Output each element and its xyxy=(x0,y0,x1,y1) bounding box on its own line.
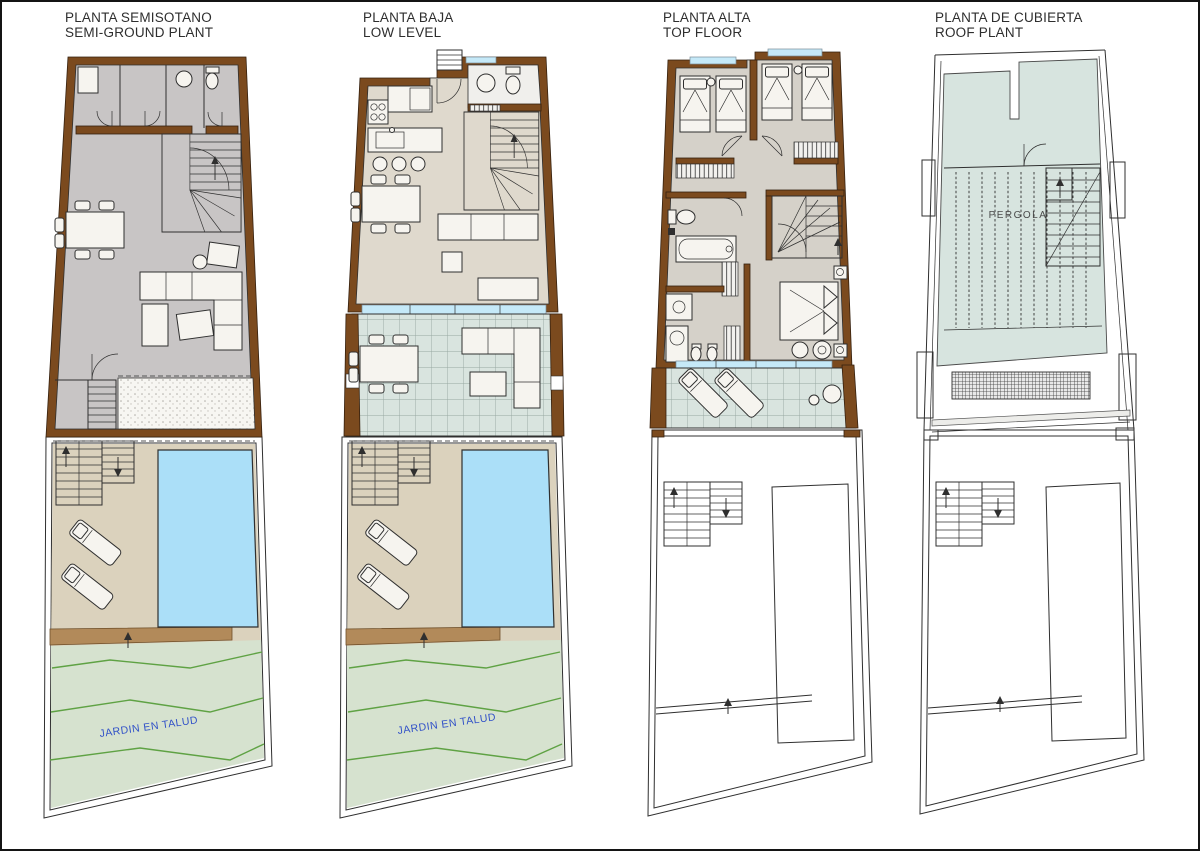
swimming-pool xyxy=(158,450,258,627)
side-table xyxy=(442,252,462,272)
stool xyxy=(373,157,387,171)
toilet xyxy=(677,210,695,224)
coffee-table xyxy=(176,310,213,340)
plan4-roof-body: PERGOLA xyxy=(917,50,1136,432)
tv-cabinet xyxy=(478,278,538,300)
bed xyxy=(802,64,832,120)
stove xyxy=(368,100,388,124)
bed xyxy=(680,76,710,132)
window xyxy=(768,49,822,56)
glass-doors xyxy=(362,305,546,314)
vanity xyxy=(666,326,688,362)
sliding-door xyxy=(470,105,500,111)
chair xyxy=(792,342,808,358)
floorplan-canvas: PLANTA SEMISOTANO SEMI-GROUND PLANT PLAN… xyxy=(0,0,1200,851)
island-counter xyxy=(368,128,442,152)
pool-outline xyxy=(772,484,854,743)
wardrobe xyxy=(676,164,734,178)
glass-doors xyxy=(676,361,832,368)
side-bay xyxy=(922,160,935,216)
plan3-building xyxy=(656,49,852,368)
plan2-garden: JARDIN EN TALUD xyxy=(340,437,572,818)
plan1-title-en: SEMI-GROUND PLANT xyxy=(65,25,213,40)
side-table xyxy=(809,395,819,405)
pool-outline xyxy=(1046,483,1126,741)
plan4-garden-outline xyxy=(920,428,1144,814)
window xyxy=(690,57,736,64)
drawing-sheet: PLANTA SEMISOTANO SEMI-GROUND PLANT PLAN… xyxy=(0,0,1200,851)
plan-semi-ground: JARDIN EN TALUD xyxy=(44,57,272,818)
gravel-strip xyxy=(118,378,255,429)
plan3-terrace xyxy=(650,365,858,428)
plan4-title-en: ROOF PLANT xyxy=(935,25,1023,40)
toilet xyxy=(206,73,218,89)
nightstand xyxy=(834,266,847,279)
plan3-garden-outline xyxy=(648,430,872,816)
chair xyxy=(193,255,207,269)
plan2-title-en: LOW LEVEL xyxy=(363,25,442,40)
wardrobe xyxy=(794,142,838,158)
toilet xyxy=(691,347,701,361)
washbasin xyxy=(477,74,495,92)
desk xyxy=(207,242,240,268)
plan3-title-es: PLANTA ALTA xyxy=(663,10,751,25)
window xyxy=(466,57,496,63)
plan-roof: PERGOLA xyxy=(917,50,1144,814)
cabinet xyxy=(78,67,98,93)
grating-strip xyxy=(952,372,1090,399)
plan-low-level: JARDIN EN TALUD xyxy=(340,50,572,818)
bed xyxy=(716,76,746,132)
plan1-garden: JARDIN EN TALUD xyxy=(44,437,272,818)
garden-staircase xyxy=(936,482,1014,546)
shower xyxy=(666,294,692,320)
chair xyxy=(823,385,841,403)
plan2-terrace xyxy=(344,314,564,436)
chaise xyxy=(142,304,168,346)
swimming-pool xyxy=(462,450,554,627)
bathtub xyxy=(676,236,736,262)
stool xyxy=(392,157,406,171)
washbasin xyxy=(176,71,192,87)
bed xyxy=(762,64,792,120)
toilet xyxy=(506,76,520,94)
direction-arrow xyxy=(996,696,1004,704)
stool xyxy=(411,157,425,171)
plan2-title-es: PLANTA BAJA xyxy=(363,10,453,25)
plan1-title-es: PLANTA SEMISOTANO xyxy=(65,10,212,25)
plan-top-floor xyxy=(648,49,872,816)
coffee-table xyxy=(470,372,506,396)
bedside-lamp xyxy=(707,78,715,86)
plan2-building xyxy=(348,50,558,314)
nightstand xyxy=(834,344,847,357)
bidet xyxy=(707,347,717,361)
chair xyxy=(813,341,831,359)
garden-staircase xyxy=(664,482,742,546)
bedside-lamp xyxy=(794,66,802,74)
plan4-title-es: PLANTA DE CUBIERTA xyxy=(935,10,1083,25)
wardrobe xyxy=(724,326,740,360)
wardrobe xyxy=(722,262,738,296)
plan1-building xyxy=(46,57,262,437)
plan3-title-en: TOP FLOOR xyxy=(663,25,742,40)
pergola-label: PERGOLA xyxy=(989,210,1048,221)
